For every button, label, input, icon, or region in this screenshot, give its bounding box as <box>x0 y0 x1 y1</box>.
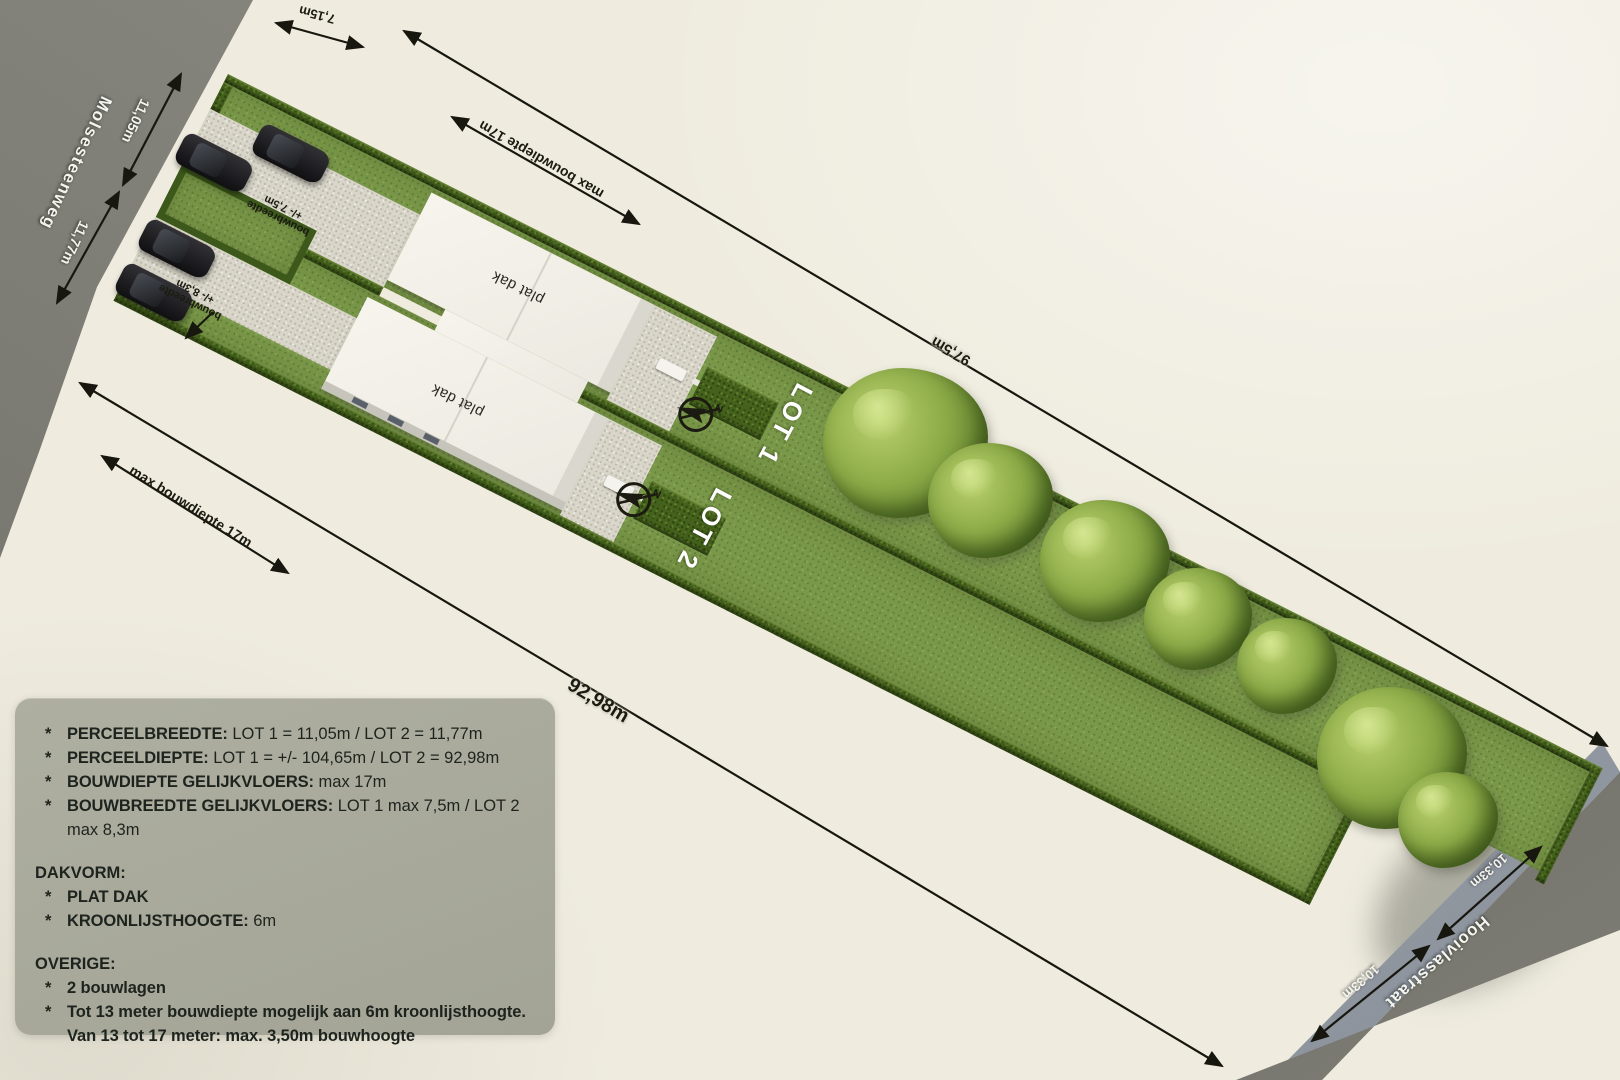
spec-row: * KROONLIJSTHOOGTE: 6m <box>35 909 541 933</box>
dim-line-7-15 <box>276 23 363 47</box>
dim-label-depth-bottom: max bouwdiepte 17m <box>127 462 256 551</box>
spec-text: Tot 13 meter bouwdiepte mogelijk aan 6m … <box>67 1000 541 1024</box>
spec-text: PERCEELDIEPTE: LOT 1 = +/- 104,65m / LOT… <box>67 746 541 770</box>
dakvorm-heading: DAKVORM: <box>35 861 541 885</box>
compass-n: N <box>650 487 663 501</box>
spec-text: Van 13 tot 17 meter: max. 3,50m bouwhoog… <box>67 1024 541 1048</box>
bullet: * <box>35 770 67 794</box>
bullet: * <box>35 746 67 770</box>
spec-row: * BOUWDIEPTE GELIJKVLOERS: max 17m <box>35 770 541 794</box>
spec-row: * 2 bouwlagen <box>35 976 541 1000</box>
bullet: * <box>35 1000 67 1024</box>
bullet: * <box>35 794 67 842</box>
bullet: * <box>35 885 67 909</box>
spec-text: 2 bouwlagen <box>67 976 541 1000</box>
spec-text: BOUWBREEDTE GELIJKVLOERS: LOT 1 max 7,5m… <box>67 794 541 842</box>
spec-row: * Tot 13 meter bouwdiepte mogelijk aan 6… <box>35 1000 541 1024</box>
spec-row-continuation: Van 13 tot 17 meter: max. 3,50m bouwhoog… <box>35 1024 541 1048</box>
spec-row: * PLAT DAK <box>35 885 541 909</box>
spec-text: BOUWDIEPTE GELIJKVLOERS: max 17m <box>67 770 541 794</box>
spec-text: KROONLIJSTHOOGTE: 6m <box>67 909 541 933</box>
overige-heading: OVERIGE: <box>35 952 541 976</box>
site-plan: N N LOT 1 LOT 2 plat dak plat dak <box>0 0 1620 1080</box>
bullet: * <box>35 909 67 933</box>
spec-text: PLAT DAK <box>67 885 541 909</box>
dim-label-92-98: 92,98m <box>563 674 633 729</box>
spec-row: * PERCEELBREEDTE: LOT 1 = 11,05m / LOT 2… <box>35 722 541 746</box>
dim-label-97-5: 97,5m <box>928 333 973 369</box>
spec-row: * BOUWBREEDTE GELIJKVLOERS: LOT 1 max 7,… <box>35 794 541 842</box>
dim-label-7-15: 7,15m <box>297 3 337 27</box>
spec-text: PERCEELBREEDTE: LOT 1 = 11,05m / LOT 2 =… <box>67 722 541 746</box>
specifications-panel: * PERCEELBREEDTE: LOT 1 = 11,05m / LOT 2… <box>15 698 555 1035</box>
bullet: * <box>35 976 67 1000</box>
bullet: * <box>35 722 67 746</box>
dim-label-depth-top: max bouwdiepte 17m <box>476 118 607 203</box>
spec-row: * PERCEELDIEPTE: LOT 1 = +/- 104,65m / L… <box>35 746 541 770</box>
bullet-spacer <box>35 1024 67 1048</box>
compass-n: N <box>712 402 725 416</box>
